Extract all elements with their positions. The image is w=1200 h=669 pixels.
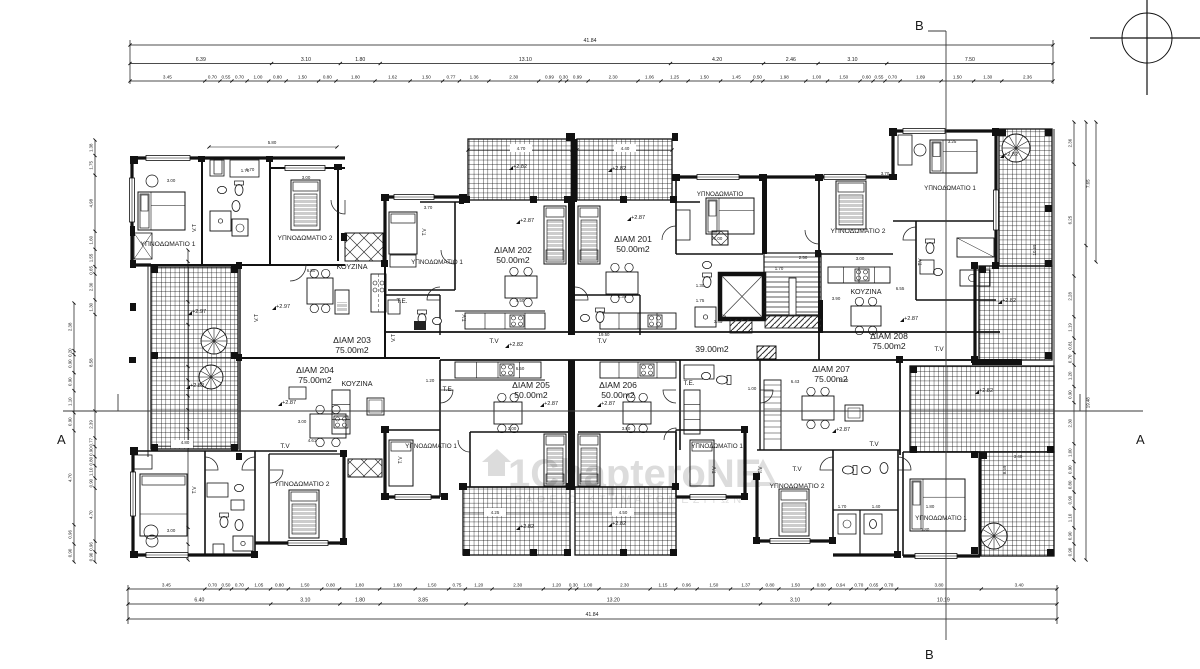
svg-text:0.65: 0.65 bbox=[869, 583, 878, 588]
svg-text:1.00: 1.00 bbox=[583, 583, 592, 588]
svg-text:1.50: 1.50 bbox=[839, 75, 848, 80]
svg-text:2.30: 2.30 bbox=[89, 282, 94, 291]
svg-text:4.50: 4.50 bbox=[516, 298, 525, 303]
svg-text:3.10: 3.10 bbox=[790, 598, 800, 604]
svg-text:+2.82: +2.82 bbox=[612, 166, 626, 172]
svg-text:0.70: 0.70 bbox=[888, 75, 897, 80]
svg-text:ΔΙΑΜ 203: ΔΙΑΜ 203 bbox=[333, 335, 371, 345]
svg-text:0.65: 0.65 bbox=[89, 266, 94, 275]
svg-text:T.V: T.V bbox=[462, 314, 468, 322]
svg-text:ΔΙΑΜ 201: ΔΙΑΜ 201 bbox=[614, 234, 652, 244]
svg-text:6.50: 6.50 bbox=[516, 366, 525, 371]
svg-text:A: A bbox=[1136, 432, 1145, 447]
svg-text:5.80: 5.80 bbox=[268, 140, 277, 145]
svg-text:0.30: 0.30 bbox=[559, 75, 568, 80]
svg-text:1.60: 1.60 bbox=[393, 583, 402, 588]
svg-text:T.V: T.V bbox=[712, 466, 718, 474]
svg-text:1.62: 1.62 bbox=[388, 75, 397, 80]
svg-text:1.60: 1.60 bbox=[89, 235, 94, 244]
svg-text:3.00: 3.00 bbox=[302, 175, 311, 180]
svg-text:ΥΠΝΟΔΩΜΑΤΙΟ: ΥΠΝΟΔΩΜΑΤΙΟ bbox=[697, 191, 744, 198]
svg-text:3.80: 3.80 bbox=[935, 583, 944, 588]
svg-text:3.00: 3.00 bbox=[167, 528, 176, 533]
svg-text:0.96: 0.96 bbox=[682, 583, 691, 588]
svg-text:ΥΠΝΟΔΩΜΑΤΙΟ 1: ΥΠΝΟΔΩΜΑΤΙΟ 1 bbox=[141, 241, 196, 248]
svg-text:ΥΠΝΟΔΩΜΑΤΙΟ 1: ΥΠΝΟΔΩΜΑΤΙΟ 1 bbox=[691, 443, 743, 450]
svg-text:0.94: 0.94 bbox=[836, 583, 845, 588]
svg-text:0.90: 0.90 bbox=[68, 548, 73, 557]
svg-text:3.45: 3.45 bbox=[162, 583, 171, 588]
svg-text:1.45: 1.45 bbox=[732, 75, 741, 80]
svg-text:0.77: 0.77 bbox=[447, 75, 456, 80]
svg-text:2.36: 2.36 bbox=[1068, 138, 1073, 147]
svg-text:0.90: 0.90 bbox=[68, 377, 73, 386]
svg-text:3.25: 3.25 bbox=[948, 139, 957, 144]
svg-text:1.30: 1.30 bbox=[89, 302, 94, 311]
svg-text:2.30: 2.30 bbox=[513, 583, 522, 588]
svg-text:1.10: 1.10 bbox=[1068, 513, 1073, 522]
svg-text:41.84: 41.84 bbox=[584, 38, 597, 44]
svg-text:1.75: 1.75 bbox=[89, 161, 94, 170]
svg-text:0.55: 0.55 bbox=[221, 75, 230, 80]
svg-text:A: A bbox=[57, 432, 66, 447]
svg-text:1.30: 1.30 bbox=[696, 283, 705, 288]
svg-text:0.90: 0.90 bbox=[1068, 547, 1073, 556]
svg-text:ΥΠΝΟΔΩΜΑΤΙΟ 2: ΥΠΝΟΔΩΜΑΤΙΟ 2 bbox=[278, 235, 333, 242]
svg-text:1.37: 1.37 bbox=[741, 583, 750, 588]
svg-text:1.80: 1.80 bbox=[355, 57, 365, 63]
svg-text:6.39: 6.39 bbox=[196, 57, 206, 63]
svg-text:0.70: 0.70 bbox=[208, 583, 217, 588]
svg-text:B: B bbox=[925, 647, 934, 662]
svg-text:0.81: 0.81 bbox=[1068, 340, 1073, 349]
svg-text:0.77: 0.77 bbox=[89, 437, 94, 446]
svg-text:1.80: 1.80 bbox=[926, 504, 935, 509]
svg-text:4.80: 4.80 bbox=[181, 440, 190, 445]
svg-text:50.00m2: 50.00m2 bbox=[496, 255, 530, 265]
svg-text:+2.82: +2.82 bbox=[190, 383, 204, 389]
svg-text:T.V: T.V bbox=[280, 443, 290, 450]
svg-text:1.89: 1.89 bbox=[916, 75, 925, 80]
svg-text:ΚΟΥΖΙΝΑ: ΚΟΥΖΙΝΑ bbox=[336, 262, 367, 271]
svg-text:T.V: T.V bbox=[722, 314, 728, 322]
svg-text:V.T: V.T bbox=[391, 333, 397, 342]
svg-text:0.75: 0.75 bbox=[453, 583, 462, 588]
svg-text:+2.97: +2.97 bbox=[192, 309, 206, 315]
svg-text:1.50: 1.50 bbox=[709, 583, 718, 588]
svg-text:T.V: T.V bbox=[597, 338, 607, 345]
svg-text:+2.87: +2.87 bbox=[631, 215, 645, 221]
svg-text:ΔΙΑΜ 208: ΔΙΑΜ 208 bbox=[870, 331, 908, 341]
svg-text:3.10: 3.10 bbox=[301, 57, 311, 63]
svg-text:1.05: 1.05 bbox=[254, 583, 263, 588]
svg-text:+2.87: +2.87 bbox=[836, 427, 850, 433]
svg-text:0.70: 0.70 bbox=[235, 75, 244, 80]
svg-text:ΥΠΝΟΔΩΜΑΤΙΟ 2: ΥΠΝΟΔΩΜΑΤΙΟ 2 bbox=[275, 481, 330, 488]
svg-text:V.T: V.T bbox=[254, 313, 260, 322]
svg-text:1.50: 1.50 bbox=[301, 583, 310, 588]
svg-text:3.40: 3.40 bbox=[1014, 454, 1023, 459]
svg-text:10.19: 10.19 bbox=[937, 598, 950, 604]
svg-text:0.80: 0.80 bbox=[1068, 480, 1073, 489]
svg-text:0.80: 0.80 bbox=[89, 456, 94, 465]
svg-text:T.V: T.V bbox=[192, 486, 198, 494]
svg-text:1.20: 1.20 bbox=[474, 583, 483, 588]
svg-text:0.90: 0.90 bbox=[68, 359, 73, 368]
svg-text:4.61: 4.61 bbox=[308, 438, 317, 443]
svg-text:4.70: 4.70 bbox=[89, 510, 94, 519]
svg-text:0.80: 0.80 bbox=[817, 583, 826, 588]
svg-text:ΥΠΝΟΔΩΜΑΤΙΟ 1: ΥΠΝΟΔΩΜΑΤΙΟ 1 bbox=[915, 515, 967, 522]
svg-text:0.90: 0.90 bbox=[1068, 495, 1073, 504]
svg-text:1.30: 1.30 bbox=[983, 75, 992, 80]
svg-text:0.80: 0.80 bbox=[273, 75, 282, 80]
svg-text:3.80: 3.80 bbox=[622, 426, 631, 431]
svg-text:50.00m2: 50.00m2 bbox=[616, 244, 650, 254]
svg-text:1.70: 1.70 bbox=[775, 266, 784, 271]
svg-text:1.15: 1.15 bbox=[659, 583, 668, 588]
svg-text:0.50: 0.50 bbox=[222, 583, 231, 588]
svg-text:0.90: 0.90 bbox=[89, 552, 94, 561]
svg-text:1.20: 1.20 bbox=[840, 378, 849, 383]
svg-text:6.55: 6.55 bbox=[896, 286, 905, 291]
svg-text:Τ.Ε.: Τ.Ε. bbox=[683, 380, 694, 387]
svg-text:0.80: 0.80 bbox=[323, 75, 332, 80]
svg-text:3.90: 3.90 bbox=[832, 296, 841, 301]
svg-text:B: B bbox=[915, 18, 924, 33]
svg-text:50.00m2: 50.00m2 bbox=[601, 390, 635, 400]
svg-text:4.20: 4.20 bbox=[712, 57, 722, 63]
svg-text:3.70: 3.70 bbox=[424, 205, 433, 210]
svg-text:0.99: 0.99 bbox=[573, 75, 582, 80]
svg-text:3.00: 3.00 bbox=[856, 256, 865, 261]
svg-text:75.00m2: 75.00m2 bbox=[872, 341, 906, 351]
svg-text:1.75: 1.75 bbox=[696, 298, 705, 303]
svg-text:0.30: 0.30 bbox=[569, 583, 578, 588]
svg-text:+2.87: +2.87 bbox=[544, 401, 558, 407]
svg-text:T.V: T.V bbox=[918, 258, 924, 266]
svg-text:0.80: 0.80 bbox=[765, 583, 774, 588]
svg-text:1.38: 1.38 bbox=[89, 143, 94, 152]
svg-text:13.10: 13.10 bbox=[519, 57, 532, 63]
svg-text:2.36: 2.36 bbox=[1023, 75, 1032, 80]
svg-text:1.00: 1.00 bbox=[1068, 448, 1073, 457]
svg-text:1.10: 1.10 bbox=[89, 467, 94, 476]
svg-text:1.80: 1.80 bbox=[921, 527, 930, 532]
svg-text:6.40: 6.40 bbox=[194, 598, 204, 604]
svg-text:0.70: 0.70 bbox=[208, 75, 217, 80]
svg-text:2.30: 2.30 bbox=[1068, 418, 1073, 427]
svg-text:7.50: 7.50 bbox=[965, 57, 975, 63]
svg-text:1.19: 1.19 bbox=[1068, 323, 1073, 332]
svg-text:+2.87: +2.87 bbox=[904, 316, 918, 322]
svg-text:3.10: 3.10 bbox=[300, 598, 310, 604]
svg-text:1.10: 1.10 bbox=[68, 397, 73, 406]
svg-text:1.40: 1.40 bbox=[872, 504, 881, 509]
svg-text:ΥΠΝΟΔΩΜΑΤΙΟ 1: ΥΠΝΟΔΩΜΑΤΙΟ 1 bbox=[924, 185, 976, 192]
svg-text:2.30: 2.30 bbox=[509, 75, 518, 80]
svg-text:4.40: 4.40 bbox=[621, 146, 630, 151]
svg-text:1.50: 1.50 bbox=[791, 583, 800, 588]
svg-text:50.00m2: 50.00m2 bbox=[514, 390, 548, 400]
svg-text:1.50: 1.50 bbox=[953, 75, 962, 80]
svg-text:0.80: 0.80 bbox=[326, 583, 335, 588]
svg-text:3.00: 3.00 bbox=[298, 419, 307, 424]
svg-text:75.00m2: 75.00m2 bbox=[335, 345, 369, 355]
svg-text:0.96: 0.96 bbox=[89, 542, 94, 551]
svg-text:Τ.Ε.: Τ.Ε. bbox=[442, 386, 453, 393]
svg-text:1.36: 1.36 bbox=[470, 75, 479, 80]
svg-text:1.50: 1.50 bbox=[700, 75, 709, 80]
svg-text:1.98: 1.98 bbox=[780, 75, 789, 80]
svg-text:1.25: 1.25 bbox=[670, 75, 679, 80]
svg-text:ΔΙΑΜ 207: ΔΙΑΜ 207 bbox=[812, 364, 850, 374]
svg-text:ΥΠΝΟΔΩΜΑΤΙΟ 1: ΥΠΝΟΔΩΜΑΤΙΟ 1 bbox=[411, 259, 463, 266]
svg-text:0.90: 0.90 bbox=[68, 417, 73, 426]
svg-text:+2.82: +2.82 bbox=[979, 388, 993, 394]
svg-text:4.50: 4.50 bbox=[619, 510, 628, 515]
svg-text:1.20: 1.20 bbox=[1068, 371, 1073, 380]
svg-text:0.80: 0.80 bbox=[275, 583, 284, 588]
svg-text:1.55: 1.55 bbox=[89, 253, 94, 262]
svg-text:0.50: 0.50 bbox=[753, 75, 762, 80]
svg-text:0.90: 0.90 bbox=[89, 478, 94, 487]
svg-text:0.90: 0.90 bbox=[1068, 531, 1073, 540]
svg-text:6.25: 6.25 bbox=[1068, 215, 1073, 224]
svg-text:0.55: 0.55 bbox=[875, 75, 884, 80]
svg-text:T.V: T.V bbox=[398, 456, 404, 464]
svg-text:2.28: 2.28 bbox=[1068, 292, 1073, 301]
svg-text:ΥΠΝΟΔΩΜΑΤΙΟ 2: ΥΠΝΟΔΩΜΑΤΙΟ 2 bbox=[831, 228, 886, 235]
svg-text:39.00m2: 39.00m2 bbox=[695, 344, 729, 354]
svg-text:2.30: 2.30 bbox=[609, 75, 618, 80]
svg-text:13.20: 13.20 bbox=[607, 598, 620, 604]
svg-text:+2.87: +2.87 bbox=[601, 401, 615, 407]
svg-text:1.00: 1.00 bbox=[714, 236, 723, 241]
svg-text:0.90: 0.90 bbox=[1068, 465, 1073, 474]
svg-text:1.80: 1.80 bbox=[351, 75, 360, 80]
svg-text:3.00: 3.00 bbox=[167, 178, 176, 183]
svg-text:3.00: 3.00 bbox=[508, 426, 517, 431]
svg-text:+2.82: +2.82 bbox=[513, 164, 527, 170]
svg-text:ΔΙΑΜ 206: ΔΙΑΜ 206 bbox=[599, 380, 637, 390]
svg-text:ΥΠΝΟΔΩΜΑΤΙΟ 2: ΥΠΝΟΔΩΜΑΤΙΟ 2 bbox=[770, 483, 825, 490]
svg-text:0.96: 0.96 bbox=[68, 530, 73, 539]
svg-text:19.50: 19.50 bbox=[599, 332, 611, 337]
svg-text:0.99: 0.99 bbox=[545, 75, 554, 80]
svg-text:4.70: 4.70 bbox=[68, 473, 73, 482]
svg-text:+2.97: +2.97 bbox=[276, 304, 290, 310]
svg-text:Τ.Ε.: Τ.Ε. bbox=[396, 298, 407, 305]
svg-text:0.70: 0.70 bbox=[235, 583, 244, 588]
svg-text:T.V: T.V bbox=[758, 466, 764, 474]
svg-text:1.00: 1.00 bbox=[253, 75, 262, 80]
svg-text:1.06: 1.06 bbox=[645, 75, 654, 80]
svg-text:8.69: 8.69 bbox=[1002, 465, 1007, 474]
svg-text:T.V: T.V bbox=[869, 441, 879, 448]
svg-text:2.39: 2.39 bbox=[89, 420, 94, 429]
svg-text:ΥΠΝΟΔΩΜΑΤΙΟ 1: ΥΠΝΟΔΩΜΑΤΙΟ 1 bbox=[405, 443, 457, 450]
svg-text:1.80: 1.80 bbox=[355, 598, 365, 604]
svg-text:0.90: 0.90 bbox=[89, 447, 94, 456]
svg-text:3.10: 3.10 bbox=[847, 57, 857, 63]
svg-text:ΔΙΑΜ 202: ΔΙΑΜ 202 bbox=[494, 245, 532, 255]
svg-text:7.65: 7.65 bbox=[1086, 179, 1091, 188]
svg-text:+2.82: +2.82 bbox=[509, 342, 523, 348]
svg-text:ΚΟΥΖΙΝΑ: ΚΟΥΖΙΝΑ bbox=[341, 379, 372, 388]
svg-text:6.50: 6.50 bbox=[307, 268, 316, 273]
svg-text:3.40: 3.40 bbox=[1015, 583, 1024, 588]
svg-text:10.69: 10.69 bbox=[1032, 244, 1037, 256]
svg-text:ΔΙΑΜ 204: ΔΙΑΜ 204 bbox=[296, 365, 334, 375]
svg-text:1.70: 1.70 bbox=[246, 167, 255, 172]
svg-text:+2.87: +2.87 bbox=[282, 400, 296, 406]
svg-text:3.45: 3.45 bbox=[163, 75, 172, 80]
svg-text:T.V: T.V bbox=[792, 466, 802, 473]
svg-text:+2.82: +2.82 bbox=[1004, 152, 1018, 158]
svg-text:V.T: V.T bbox=[192, 223, 198, 232]
svg-text:4.70: 4.70 bbox=[517, 146, 526, 151]
svg-text:T.V: T.V bbox=[489, 338, 499, 345]
svg-text:1.70: 1.70 bbox=[838, 504, 847, 509]
svg-text:3.70: 3.70 bbox=[881, 171, 890, 176]
svg-text:4.35: 4.35 bbox=[618, 294, 627, 299]
svg-text:0.20: 0.20 bbox=[68, 348, 73, 357]
svg-text:2.46: 2.46 bbox=[786, 57, 796, 63]
svg-text:4.98: 4.98 bbox=[89, 198, 94, 207]
svg-text:0.70: 0.70 bbox=[1068, 354, 1073, 363]
svg-text:8.58: 8.58 bbox=[89, 358, 94, 367]
svg-text:+2.82: +2.82 bbox=[1002, 298, 1016, 304]
svg-text:+2.82: +2.82 bbox=[520, 524, 534, 530]
svg-text:0.90: 0.90 bbox=[1068, 390, 1073, 399]
svg-text:1.00: 1.00 bbox=[812, 75, 821, 80]
svg-text:1.50: 1.50 bbox=[427, 583, 436, 588]
svg-text:1.50: 1.50 bbox=[298, 75, 307, 80]
svg-text:41.84: 41.84 bbox=[586, 612, 599, 618]
svg-text:0.70: 0.70 bbox=[884, 583, 893, 588]
svg-text:6.43: 6.43 bbox=[791, 379, 800, 384]
svg-text:+2.87: +2.87 bbox=[520, 218, 534, 224]
svg-text:3.45: 3.45 bbox=[714, 319, 723, 324]
svg-text:+2.82: +2.82 bbox=[612, 521, 626, 527]
svg-text:ΚΟΥΖΙΝΑ: ΚΟΥΖΙΝΑ bbox=[850, 287, 881, 296]
svg-text:19.48: 19.48 bbox=[1086, 397, 1091, 409]
svg-text:2.30: 2.30 bbox=[620, 583, 629, 588]
svg-text:75.00m2: 75.00m2 bbox=[298, 375, 332, 385]
svg-text:0.70: 0.70 bbox=[854, 583, 863, 588]
svg-text:1.00: 1.00 bbox=[748, 386, 757, 391]
svg-text:ΔΙΑΜ 205: ΔΙΑΜ 205 bbox=[512, 380, 550, 390]
svg-text:1.20: 1.20 bbox=[552, 583, 561, 588]
svg-text:1.50: 1.50 bbox=[422, 75, 431, 80]
svg-text:T.V: T.V bbox=[934, 346, 944, 353]
svg-text:1.80: 1.80 bbox=[355, 583, 364, 588]
svg-text:4.25: 4.25 bbox=[491, 510, 500, 515]
svg-text:2.50: 2.50 bbox=[799, 255, 808, 260]
svg-text:3.85: 3.85 bbox=[418, 598, 428, 604]
svg-text:2.38: 2.38 bbox=[68, 322, 73, 331]
svg-text:1.20: 1.20 bbox=[426, 378, 435, 383]
svg-text:0.60: 0.60 bbox=[862, 75, 871, 80]
svg-text:T.V: T.V bbox=[422, 228, 428, 236]
